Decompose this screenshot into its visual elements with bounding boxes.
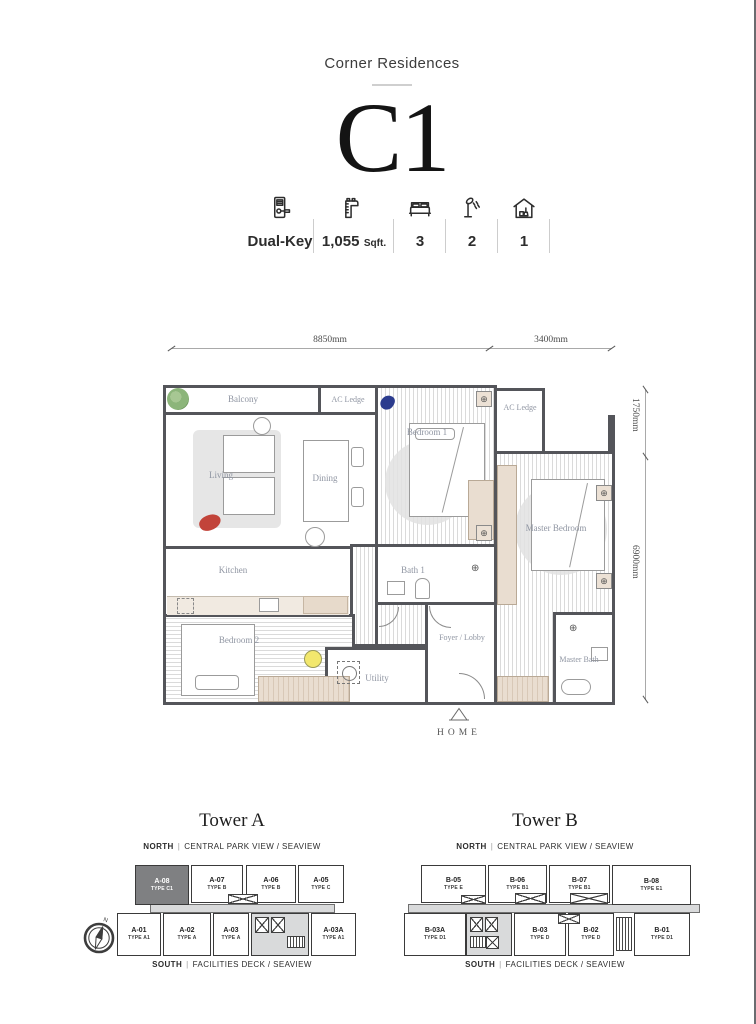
spec-dual-key-label: Dual-Key bbox=[247, 233, 312, 250]
sofa bbox=[223, 477, 275, 515]
floor-trap-icon: ⊕ bbox=[471, 563, 479, 574]
label-dining: Dining bbox=[295, 473, 355, 485]
dim-top-main: 8850mm bbox=[250, 335, 410, 345]
ac-vent-icon: ⊕ bbox=[476, 391, 492, 407]
wall-stub bbox=[608, 415, 615, 454]
unit-type: TYPE E bbox=[444, 885, 463, 892]
stairs-icon bbox=[616, 917, 632, 951]
dining-chair bbox=[351, 447, 364, 467]
compass: N bbox=[78, 913, 120, 962]
unit-a01: A-01 TYPE A1 bbox=[117, 913, 161, 956]
house-utility-icon bbox=[498, 194, 550, 227]
unit-id: A-08 bbox=[154, 878, 169, 886]
label-master-bath: Master Bath bbox=[555, 655, 603, 665]
pipe: | bbox=[186, 960, 188, 969]
unit-id: B-06 bbox=[510, 877, 525, 885]
unit-type: TYPE B1 bbox=[506, 885, 528, 892]
floor-trap-icon: ⊕ bbox=[569, 623, 577, 634]
unit-type: TYPE A bbox=[221, 935, 240, 942]
south-view: FACILITIES DECK / SEAVIEW bbox=[506, 960, 625, 969]
spec-row: Dual-Key 1,055 Sqft. 3 2 1 bbox=[246, 194, 550, 253]
unit-type: TYPE D bbox=[581, 935, 600, 942]
stairs-icon bbox=[470, 936, 486, 948]
compass-n-label: N bbox=[102, 917, 108, 924]
tower-a-title: Tower A bbox=[132, 810, 332, 832]
lift-shaft-icon bbox=[461, 895, 486, 904]
side-table bbox=[253, 417, 271, 435]
spec-utility: 1 bbox=[498, 194, 550, 253]
lift-shaft-icon bbox=[570, 893, 608, 904]
kitchen-appliance bbox=[177, 598, 194, 614]
lift-shaft-icon bbox=[255, 917, 269, 933]
dim-right-lower: 6900mm bbox=[630, 545, 640, 615]
unit-id: B-01 bbox=[654, 927, 669, 935]
unit-id: B-03 bbox=[532, 927, 547, 935]
south-label: SOUTH bbox=[152, 960, 182, 969]
measuring-tape-icon bbox=[314, 194, 394, 227]
unit-code-title: C1 bbox=[14, 88, 756, 188]
unit-id: B-02 bbox=[583, 927, 598, 935]
brochure-page: { "header": { "project_name": "Corner Re… bbox=[0, 0, 756, 1024]
home-logo: HOME bbox=[432, 707, 486, 738]
unit-id: A-02 bbox=[179, 927, 194, 935]
sofa bbox=[223, 435, 275, 473]
north-view: CENTRAL PARK VIEW / SEAVIEW bbox=[497, 842, 633, 851]
lift-shaft-icon bbox=[515, 893, 546, 904]
dim-line-top bbox=[172, 348, 612, 349]
tower-b-corridor bbox=[408, 904, 700, 913]
spec-bedrooms-count: 3 bbox=[416, 233, 424, 250]
dim-top-right: 3400mm bbox=[496, 335, 606, 345]
unit-id: A-07 bbox=[209, 877, 224, 885]
unit-id: A-05 bbox=[313, 877, 328, 885]
yellow-stool bbox=[304, 650, 322, 668]
lift-shaft-icon bbox=[470, 917, 483, 932]
tower-b-south-line: SOUTH|FACILITIES DECK / SEAVIEW bbox=[398, 960, 692, 969]
kitchen-sink bbox=[259, 598, 279, 612]
unit-type: TYPE C bbox=[311, 885, 330, 892]
unit-type: TYPE D1 bbox=[651, 935, 673, 942]
dim-tick bbox=[608, 346, 616, 352]
unit-type: TYPE B bbox=[261, 885, 280, 892]
south-view: FACILITIES DECK / SEAVIEW bbox=[193, 960, 312, 969]
tower-a-corridor bbox=[150, 904, 335, 913]
bed-icon bbox=[394, 194, 446, 227]
bedroom2-pillow bbox=[195, 675, 239, 690]
spec-bathrooms-count: 2 bbox=[468, 233, 476, 250]
spec-area-value: 1,055 bbox=[322, 233, 360, 250]
dining-chair bbox=[351, 487, 364, 507]
unit-id: B-07 bbox=[572, 877, 587, 885]
unit-type: TYPE A1 bbox=[128, 935, 150, 942]
unit-b08: B-08 TYPE E1 bbox=[612, 865, 691, 905]
label-ac-ledge-right: AC Ledge bbox=[499, 403, 541, 413]
room-ac-ledge-right bbox=[494, 388, 545, 454]
plant-icon bbox=[167, 388, 189, 410]
spec-utility-count: 1 bbox=[520, 233, 528, 250]
master-wardrobe bbox=[497, 465, 517, 605]
tower-b-section: Tower B NORTH|CENTRAL PARK VIEW / SEAVIE… bbox=[398, 810, 720, 990]
label-bedroom1: Bedroom 1 bbox=[401, 427, 453, 439]
label-balcony: Balcony bbox=[193, 394, 293, 406]
pipe: | bbox=[491, 842, 493, 851]
lift-shaft-icon bbox=[228, 894, 258, 904]
spec-bedrooms: 3 bbox=[394, 194, 446, 253]
unit-id: B-03A bbox=[425, 927, 445, 935]
unit-id: A-01 bbox=[131, 927, 146, 935]
spec-separator bbox=[549, 219, 550, 253]
master-wardrobe2 bbox=[497, 676, 549, 702]
unit-id: A-03 bbox=[223, 927, 238, 935]
lift-shaft-icon bbox=[271, 917, 285, 933]
label-bath1: Bath 1 bbox=[393, 565, 433, 577]
label-living: Living bbox=[191, 470, 251, 482]
label-ac-ledge-top: AC Ledge bbox=[316, 395, 380, 405]
shower-icon bbox=[446, 194, 498, 227]
unit-id: A-03A bbox=[323, 927, 343, 935]
spec-area-unit: Sqft. bbox=[364, 238, 386, 249]
dim-right-upper: 1750mm bbox=[630, 398, 640, 456]
north-label: NORTH bbox=[143, 842, 173, 851]
home-triangle-icon bbox=[448, 707, 470, 722]
kitchen-cabinet bbox=[303, 596, 348, 614]
master-bath-tub bbox=[561, 679, 591, 695]
unit-type: TYPE B bbox=[207, 885, 226, 892]
unit-id: B-05 bbox=[446, 877, 461, 885]
tower-a-section: Tower A NORTH|CENTRAL PARK VIEW / SEAVIE… bbox=[65, 810, 380, 990]
bath1-sink bbox=[387, 581, 405, 595]
unit-a03a: A-03A TYPE A1 bbox=[311, 913, 356, 956]
label-utility: Utility bbox=[347, 673, 407, 685]
tower-a-south-line: SOUTH|FACILITIES DECK / SEAVIEW bbox=[82, 960, 382, 969]
tower-a-north-line: NORTH|CENTRAL PARK VIEW / SEAVIEW bbox=[82, 842, 382, 851]
spec-area: 1,055 Sqft. bbox=[314, 194, 394, 253]
unit-b01: B-01 TYPE D1 bbox=[634, 913, 690, 956]
unit-type: TYPE E1 bbox=[641, 886, 663, 893]
unit-type: TYPE A bbox=[177, 935, 196, 942]
project-name: Corner Residences bbox=[14, 55, 756, 72]
unit-type: TYPE D1 bbox=[424, 935, 446, 942]
floor-lamp bbox=[305, 527, 325, 547]
ac-vent-icon: ⊕ bbox=[476, 525, 492, 541]
ac-vent-icon: ⊕ bbox=[596, 573, 612, 589]
pipe: | bbox=[178, 842, 180, 851]
unit-a02: A-02 TYPE A bbox=[163, 913, 211, 956]
unit-a08-highlighted: A-08 TYPE C1 bbox=[135, 865, 189, 905]
home-logo-text: HOME bbox=[432, 728, 486, 738]
unit-b03a: B-03A TYPE D1 bbox=[404, 913, 466, 956]
smart-lock-icon bbox=[246, 194, 314, 227]
bath1-toilet bbox=[415, 578, 430, 599]
lift-shaft-icon bbox=[486, 936, 499, 949]
pipe: | bbox=[499, 960, 501, 969]
dim-line-right bbox=[645, 390, 646, 700]
south-label: SOUTH bbox=[465, 960, 495, 969]
unit-type: TYPE D bbox=[530, 935, 549, 942]
lift-shaft-icon bbox=[558, 914, 580, 924]
spec-bathrooms: 2 bbox=[446, 194, 498, 253]
unit-a03: A-03 TYPE A bbox=[213, 913, 249, 956]
lift-shaft-icon bbox=[485, 917, 498, 932]
label-kitchen: Kitchen bbox=[198, 565, 268, 577]
spec-dual-key: Dual-Key bbox=[246, 194, 314, 253]
north-label: NORTH bbox=[456, 842, 486, 851]
ac-vent-icon: ⊕ bbox=[596, 485, 612, 501]
stairs-icon bbox=[287, 936, 305, 948]
label-master-bedroom: Master Bedroom bbox=[525, 523, 587, 535]
north-view: CENTRAL PARK VIEW / SEAVIEW bbox=[184, 842, 320, 851]
unit-type: TYPE A1 bbox=[322, 935, 344, 942]
floor-plan: ⊕ ⊕ ⊕ ⊕ ⊕ ⊕ Balcony AC Ledge Bedroom 1 A… bbox=[163, 385, 615, 705]
tower-b-north-line: NORTH|CENTRAL PARK VIEW / SEAVIEW bbox=[398, 842, 692, 851]
unit-id: A-06 bbox=[263, 877, 278, 885]
unit-id: B-08 bbox=[644, 878, 659, 886]
label-bedroom2: Bedroom 2 bbox=[208, 635, 270, 647]
unit-type: TYPE C1 bbox=[151, 886, 173, 893]
label-foyer: Foyer / Lobby bbox=[429, 633, 495, 643]
tower-b-title: Tower B bbox=[445, 810, 645, 832]
unit-type: TYPE B1 bbox=[568, 885, 590, 892]
unit-a05: A-05 TYPE C bbox=[298, 865, 344, 903]
